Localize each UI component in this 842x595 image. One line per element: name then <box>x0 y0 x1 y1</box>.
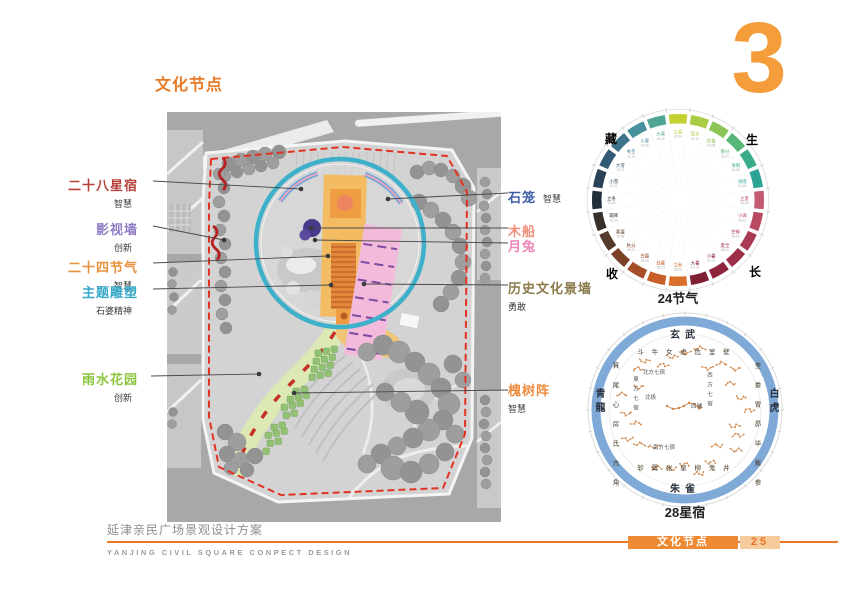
svg-text:07.23: 07.23 <box>691 266 699 270</box>
quadrant-qinglong: 青龍 <box>591 388 606 416</box>
plan-label: 主题雕塑石婆精神 <box>82 282 138 317</box>
svg-text:12.22: 12.22 <box>627 154 635 158</box>
footer-page-number: 25 <box>740 536 780 549</box>
svg-text:05.06: 05.06 <box>741 201 749 205</box>
svg-text:04.05: 04.05 <box>732 168 740 172</box>
plan-label-name: 影视墙 <box>96 219 138 238</box>
corner-label-zhang: 长 <box>749 263 761 280</box>
plan-label-name: 历史文化景墙 <box>508 278 592 297</box>
plan-label-name: 石笼 <box>508 190 536 205</box>
center-pole-label: 北极 <box>645 393 656 401</box>
plan-label-name: 月兔 <box>508 236 536 255</box>
mansions-wheel: 玄武 朱雀 青龍 白虎 北方七宿 南方七宿 東方七宿 西方七宿 北极 四辅 斗 … <box>585 310 785 510</box>
svg-text:03.06: 03.06 <box>707 144 715 148</box>
plan-label: 月兔 <box>508 236 536 255</box>
plan-label-sub: 创新 <box>96 241 132 254</box>
svg-text:10.24: 10.24 <box>610 218 618 222</box>
plan-label: 雨水花园创新 <box>82 369 138 404</box>
svg-text:06.21: 06.21 <box>721 248 729 252</box>
svg-text:01.20: 01.20 <box>657 137 665 141</box>
plan-label-sub: 智慧 <box>543 194 561 204</box>
svg-text:02.19: 02.19 <box>691 137 699 141</box>
svg-text:05.21: 05.21 <box>738 218 746 222</box>
mansions-north: 斗 牛 女 虚 危 室 壁 <box>585 346 785 356</box>
svg-text:08.08: 08.08 <box>674 268 682 272</box>
site-plan <box>167 112 501 522</box>
corner-label-shou: 收 <box>606 265 618 282</box>
svg-text:04.20: 04.20 <box>738 184 746 188</box>
svg-text:02.04: 02.04 <box>674 135 682 139</box>
footer-section-tab: 文化节点 <box>628 536 738 549</box>
svg-text:08.23: 08.23 <box>657 266 665 270</box>
plan-label: 历史文化景墙勇敢 <box>508 278 592 313</box>
mansions-east: 箕 尾 心 房 氐 亢 角 <box>609 362 619 462</box>
group-north: 北方七宿 <box>643 368 665 376</box>
theme-sculpture-small <box>300 230 311 241</box>
quadrant-baihu: 白虎 <box>765 388 780 416</box>
plan-label-sub: 勇敢 <box>508 300 592 313</box>
svg-text:09.23: 09.23 <box>627 248 635 252</box>
svg-text:11.08: 11.08 <box>608 201 616 205</box>
svg-text:01.06: 01.06 <box>641 144 649 148</box>
mansions-caption: 28星宿 <box>585 502 785 521</box>
plan-label-sub: 智慧 <box>508 402 550 415</box>
plan-label: 影视墙创新 <box>96 219 138 254</box>
site-plan-drawing <box>167 112 501 522</box>
svg-text:06.06: 06.06 <box>732 234 740 238</box>
svg-text:12.07: 12.07 <box>616 168 624 172</box>
corner-label-sheng: 生 <box>746 131 758 148</box>
plan-label: 槐树阵智慧 <box>508 380 550 415</box>
svg-text:立夏: 立夏 <box>740 195 749 201</box>
chapter-number: 3 <box>714 10 804 106</box>
solar-terms-caption: 24节气 <box>583 288 773 307</box>
plan-label-name: 槐树阵 <box>508 380 550 399</box>
corner-label-cang: 藏 <box>605 130 617 147</box>
footer-project-subtitle: YANJING CIVIL SQUARE CONPECT DESIGN <box>107 548 352 557</box>
footer-project-title: 延津亲民广场景观设计方案 <box>107 521 263 538</box>
group-east: 東方七宿 <box>631 376 639 414</box>
solar-terms-wheel: 立春02.04雨水02.19惊蛰03.06春分03.21清明04.05谷雨04.… <box>583 105 773 295</box>
group-south: 南方七宿 <box>653 443 675 451</box>
plan-label-name: 雨水花园 <box>82 369 138 388</box>
svg-text:10.08: 10.08 <box>616 234 624 238</box>
svg-text:07.07: 07.07 <box>707 259 715 263</box>
svg-text:09.08: 09.08 <box>641 259 649 263</box>
plan-label-name: 二十四节气 <box>68 257 138 276</box>
center-assist-label: 四辅 <box>691 402 702 410</box>
page-title: 文化节点 <box>155 71 223 95</box>
plan-label: 石笼智慧 <box>508 187 561 207</box>
plan-label-sub: 创新 <box>82 391 132 404</box>
plan-label-name: 二十八星宿 <box>68 175 138 194</box>
svg-text:03.21: 03.21 <box>721 154 729 158</box>
plan-label-sub: 石婆精神 <box>82 304 132 317</box>
quadrant-xuanwu: 玄武 <box>585 326 785 341</box>
plan-label-sub: 智慧 <box>68 197 132 210</box>
mansions-west: 奎 娄 胃 昴 毕 觜 参 <box>751 362 761 462</box>
plan-label-name: 主题雕塑 <box>82 282 138 301</box>
plan-label: 二十八星宿智慧 <box>68 175 138 210</box>
svg-text:11.22: 11.22 <box>610 184 618 188</box>
group-west: 西方七宿 <box>705 372 713 410</box>
